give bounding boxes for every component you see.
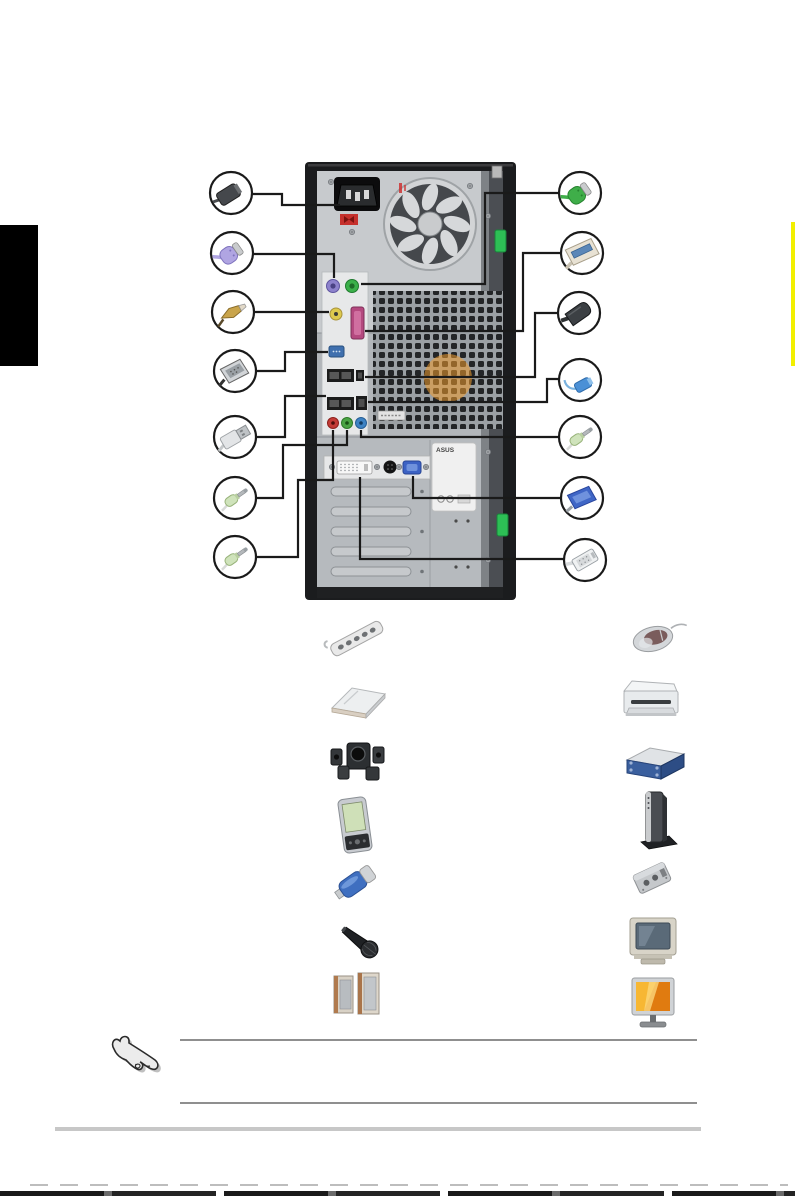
callout-power-cord — [210, 172, 252, 214]
page-bottom-faint-artifact — [30, 1184, 788, 1186]
device-lcd-monitor — [608, 967, 698, 1037]
note-text — [185, 1050, 690, 1095]
ps2-keyboard-port — [327, 280, 340, 293]
callout-ps2-keyboard — [211, 232, 253, 274]
parallel-port — [351, 307, 364, 339]
ps2-mouse-port — [346, 280, 359, 293]
expansion-card-bracket — [324, 456, 430, 479]
left-chapter-tab — [0, 225, 38, 366]
callout-mini-usb-cable — [559, 359, 601, 401]
asus-sticker: ASUS — [432, 443, 476, 511]
rear-panel-diagram: ASUS — [150, 140, 630, 620]
callout-parallel-connector — [560, 232, 603, 274]
voltage-selector-switch — [340, 214, 358, 225]
callout-serial-connector — [213, 350, 256, 392]
manual-page: ASUS — [0, 0, 795, 1197]
callout-dvi-connector — [564, 539, 606, 581]
callout-audio-plug-lower — [214, 536, 256, 578]
right-edge-tab — [791, 222, 795, 366]
device-audio-adapter — [607, 843, 697, 913]
device-crt-monitor — [608, 905, 698, 975]
green-latch-lower — [497, 514, 508, 536]
pointing-hand-icon — [105, 1030, 167, 1086]
callout-audio-plug-right — [559, 416, 601, 458]
callout-gold-plug — [212, 291, 254, 333]
ac-power-inlet — [334, 177, 380, 211]
section-divider-rule — [55, 1127, 701, 1131]
page-bottom-cutoff-text-band — [0, 1191, 795, 1196]
device-printer — [605, 664, 695, 734]
yellow-spdif-jack — [330, 308, 342, 320]
device-power-strip — [312, 604, 402, 674]
callout-usb-connector — [214, 416, 256, 458]
callout-firewire-connector — [558, 292, 600, 334]
psu-fan — [384, 178, 476, 270]
note-rule-top — [180, 1039, 697, 1041]
s-video-port — [384, 461, 397, 474]
callout-ps2-mouse — [559, 172, 601, 214]
note-rule-bottom — [180, 1102, 697, 1104]
device-stereo-speakers — [312, 958, 402, 1028]
callout-audio-plug-upper — [214, 477, 256, 519]
callout-vga-connector — [561, 477, 603, 519]
device-multichannel-speakers — [313, 722, 403, 792]
serial-port — [329, 346, 344, 357]
green-latch-upper — [495, 230, 506, 252]
asus-sticker-text: ASUS — [436, 447, 455, 454]
audio-jacks — [328, 418, 367, 429]
